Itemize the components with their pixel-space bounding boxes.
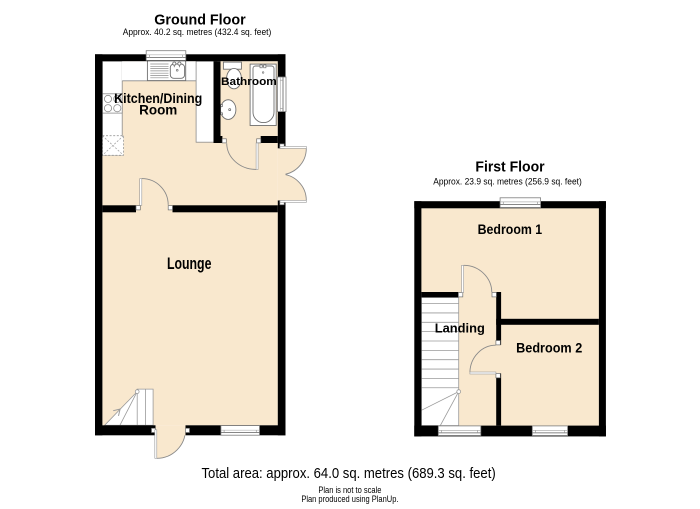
- svg-text:Landing: Landing: [435, 321, 485, 336]
- svg-text:Approx. 40.2 sq. metres (432.4: Approx. 40.2 sq. metres (432.4 sq. feet): [123, 27, 272, 38]
- svg-text:Total area: approx. 64.0 sq. m: Total area: approx. 64.0 sq. metres (689…: [202, 465, 496, 482]
- svg-text:Approx. 23.9 sq. metres (256.9: Approx. 23.9 sq. metres (256.9 sq. feet): [433, 177, 582, 188]
- svg-text:First Floor: First Floor: [475, 158, 544, 175]
- svg-text:Room: Room: [139, 102, 177, 118]
- svg-text:Bathroom: Bathroom: [221, 76, 277, 88]
- svg-text:Bedroom 2: Bedroom 2: [516, 340, 582, 355]
- svg-text:Bedroom 1: Bedroom 1: [478, 221, 543, 237]
- svg-text:Plan produced using PlanUp.: Plan produced using PlanUp.: [301, 494, 398, 504]
- svg-text:Lounge: Lounge: [167, 255, 212, 273]
